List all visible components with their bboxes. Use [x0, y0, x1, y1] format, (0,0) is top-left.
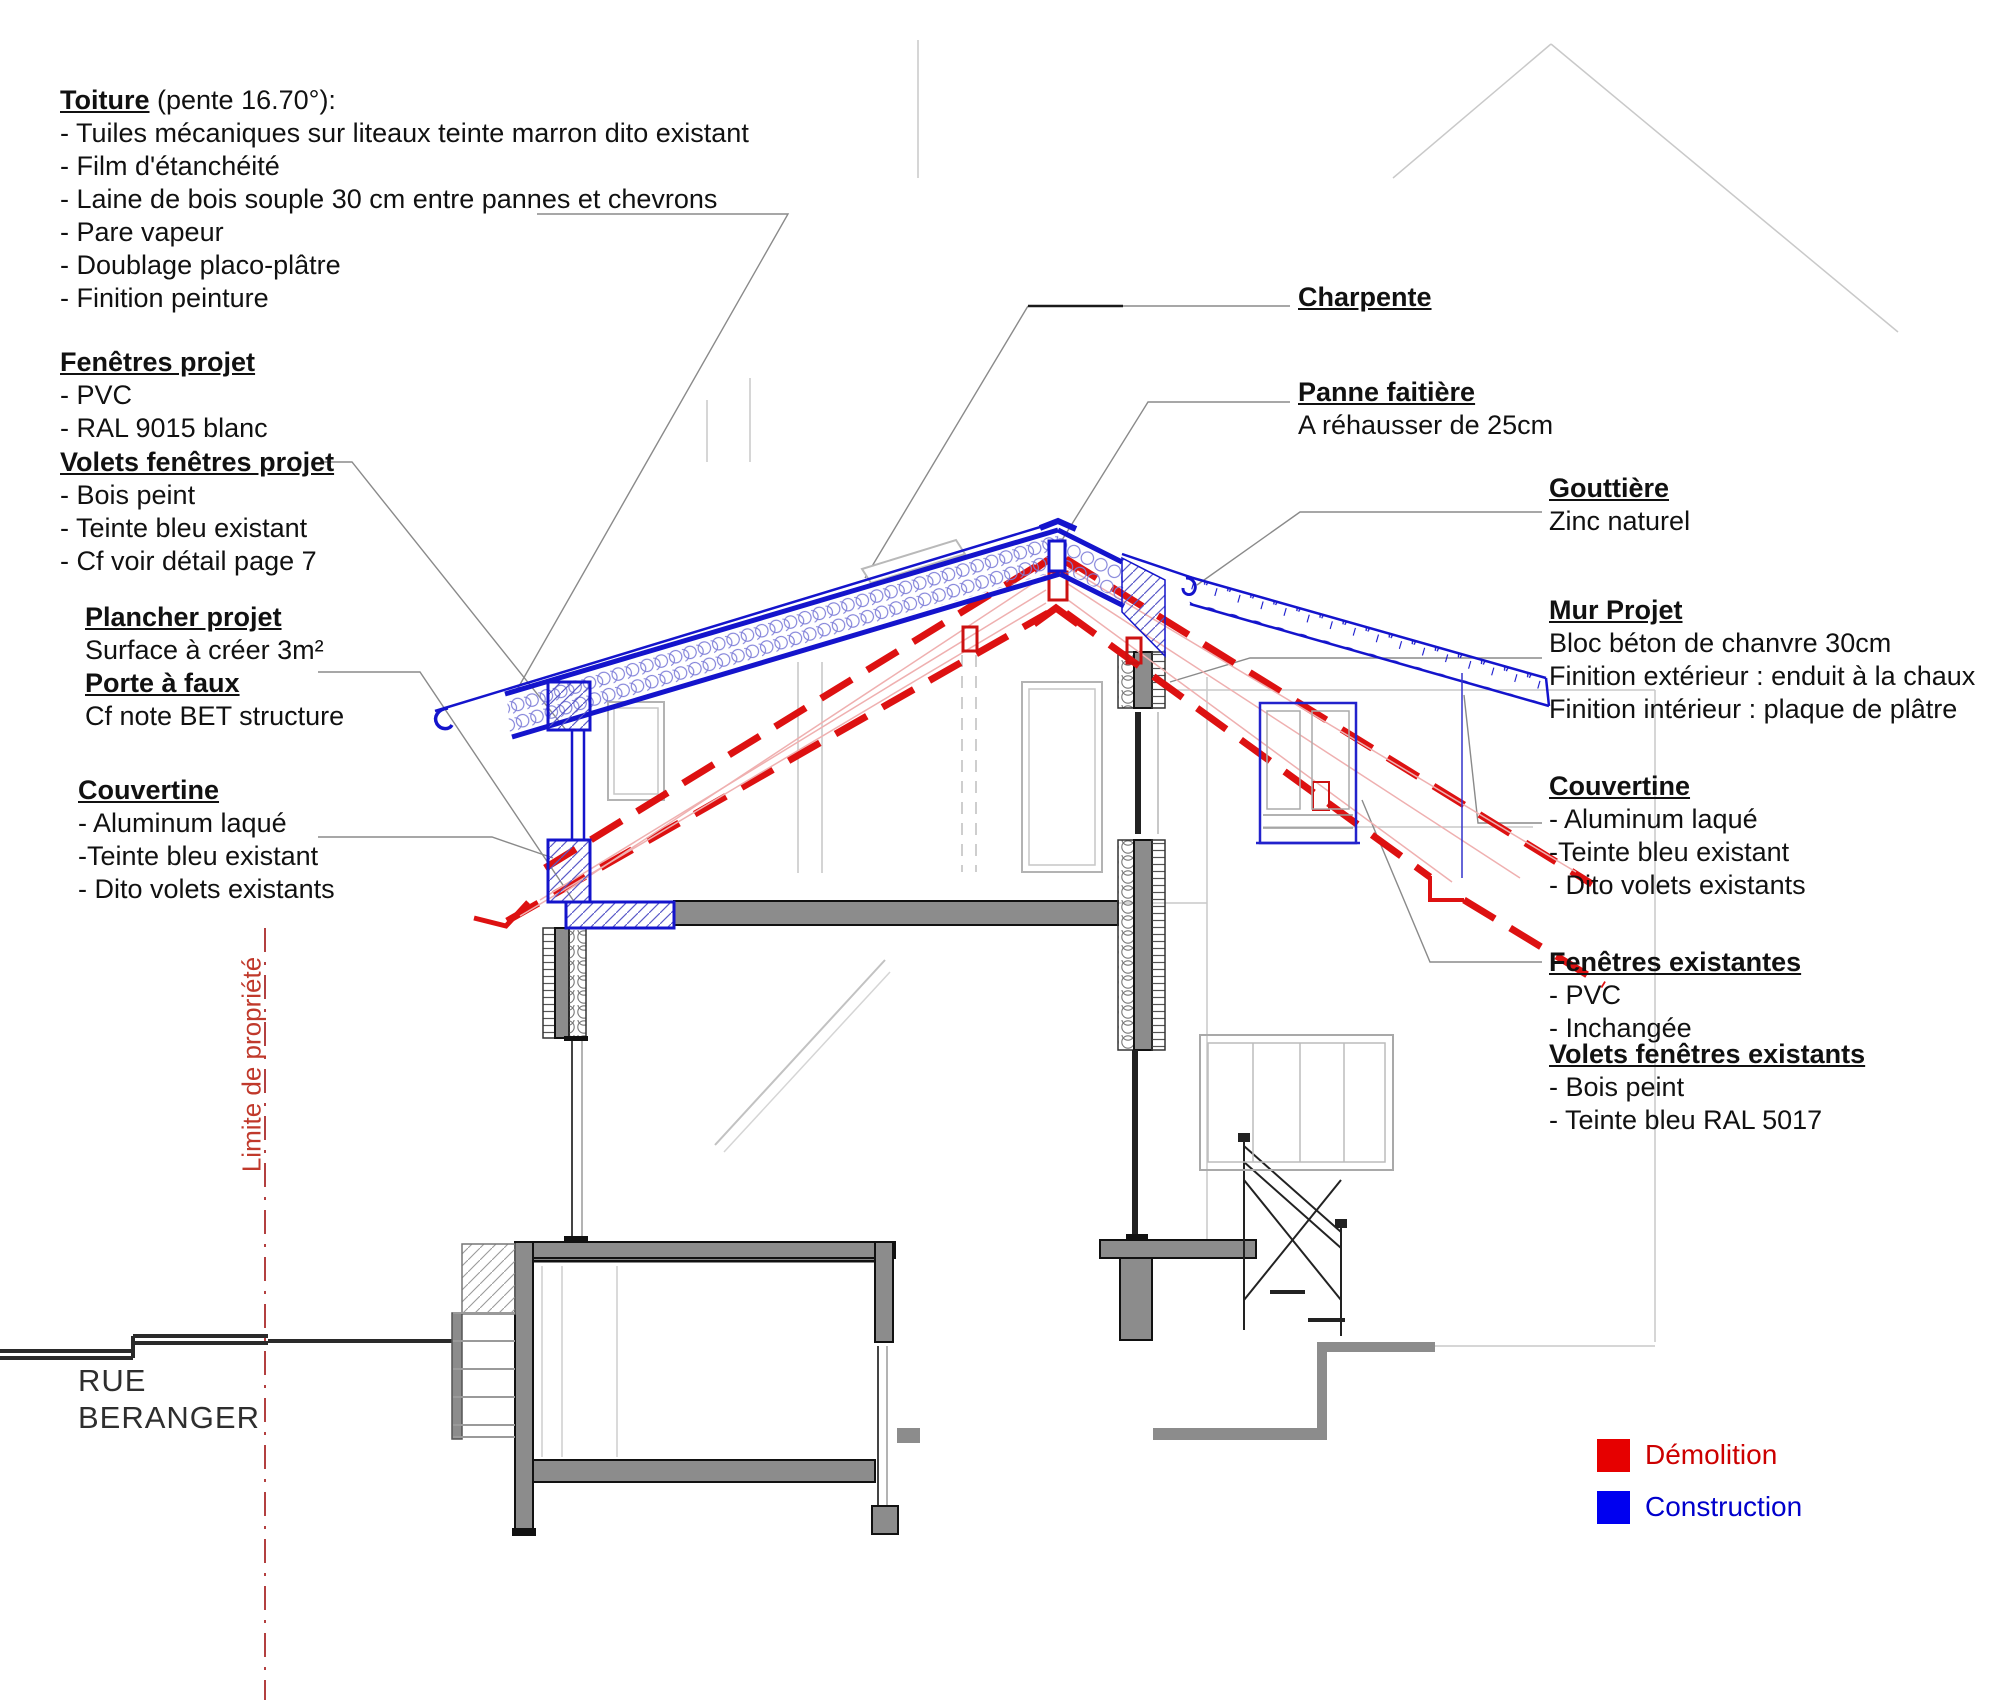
section-drawing-canvas: Toiture (pente 16.70°): - Tuiles mécaniq… — [0, 0, 2000, 1702]
street-profile — [0, 1336, 455, 1358]
note-panne-faitiere: Panne faitière A réhausser de 25cm — [1298, 376, 1553, 442]
note-fenetres-existantes: Fenêtres existantes - PVC - Inchangée — [1549, 946, 1801, 1045]
note-mur-projet: Mur Projet Bloc béton de chanvre 30cm Fi… — [1549, 594, 1975, 726]
legend: Démolition Construction — [1597, 1437, 1802, 1541]
note-couvertine-droite: Couvertine - Aluminum laqué -Teinte bleu… — [1549, 770, 1806, 902]
construction-color-swatch — [1597, 1491, 1630, 1524]
neighbour-window — [1200, 1035, 1393, 1170]
legend-demolition: Démolition — [1597, 1437, 1802, 1473]
note-volets-existants: Volets fenêtres existants - Bois peint -… — [1549, 1038, 1865, 1137]
railing — [1239, 1134, 1346, 1336]
property-line-label: Limite de propriété — [237, 915, 268, 1215]
note-volets-projet: Volets fenêtres projet - Bois peint - Te… — [60, 446, 334, 578]
legend-construction: Construction — [1597, 1489, 1802, 1525]
construction-label: Construction — [1645, 1491, 1802, 1523]
demolition-color-swatch — [1597, 1439, 1630, 1472]
right-wall — [1118, 652, 1165, 1240]
demolition-label: Démolition — [1645, 1439, 1777, 1471]
street-name: RUE BERANGER — [78, 1362, 260, 1436]
note-plancher-projet: Plancher projet Surface à créer 3m² — [85, 601, 324, 667]
note-porte-a-faux: Porte à faux Cf note BET structure — [85, 667, 344, 733]
project-window — [1256, 703, 1360, 843]
note-gouttiere: Gouttière Zinc naturel — [1549, 472, 1690, 538]
note-fenetres-projet: Fenêtres projet - PVC - RAL 9015 blanc — [60, 346, 268, 445]
note-toiture: Toiture (pente 16.70°): - Tuiles mécaniq… — [60, 84, 749, 315]
note-charpente: Charpente — [1298, 281, 1432, 314]
note-couvertine-gauche: Couvertine - Aluminum laqué -Teinte bleu… — [78, 774, 335, 906]
